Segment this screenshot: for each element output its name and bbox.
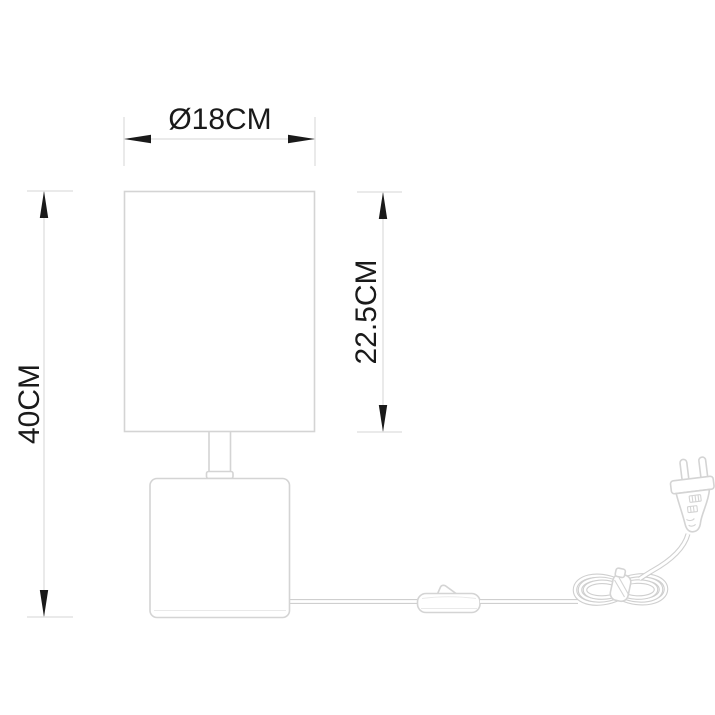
coil-tie-tab: [615, 568, 626, 578]
lamp-dimension-diagram: 40CM Ø18CM 22.5CM: [0, 0, 715, 715]
cord-coil: [575, 534, 688, 604]
dimension-shade-diameter: Ø18CM: [124, 103, 315, 166]
shade-height-label: 22.5CM: [350, 259, 383, 364]
dimension-shade-height: 22.5CM: [350, 192, 402, 432]
arrowhead-right-icon: [288, 135, 315, 143]
lamp-base: [150, 479, 290, 618]
plug-cord: [640, 534, 689, 579]
shade-diameter-label: Ø18CM: [168, 103, 271, 136]
total-height-label: 40CM: [13, 364, 46, 444]
stem-collar: [207, 472, 234, 479]
lamp-stem: [209, 431, 231, 472]
dimension-total-height: 40CM: [13, 191, 73, 617]
lamp-shade: [125, 192, 315, 432]
inline-switch: [418, 585, 481, 612]
arrowhead-up-icon: [379, 192, 387, 219]
arrowhead-left-icon: [124, 135, 151, 143]
table-lamp: [125, 192, 315, 618]
eu-plug: [668, 456, 715, 534]
arrowhead-down-icon: [379, 405, 387, 432]
arrowhead-up-icon: [40, 191, 48, 218]
arrowhead-down-icon: [40, 590, 48, 617]
